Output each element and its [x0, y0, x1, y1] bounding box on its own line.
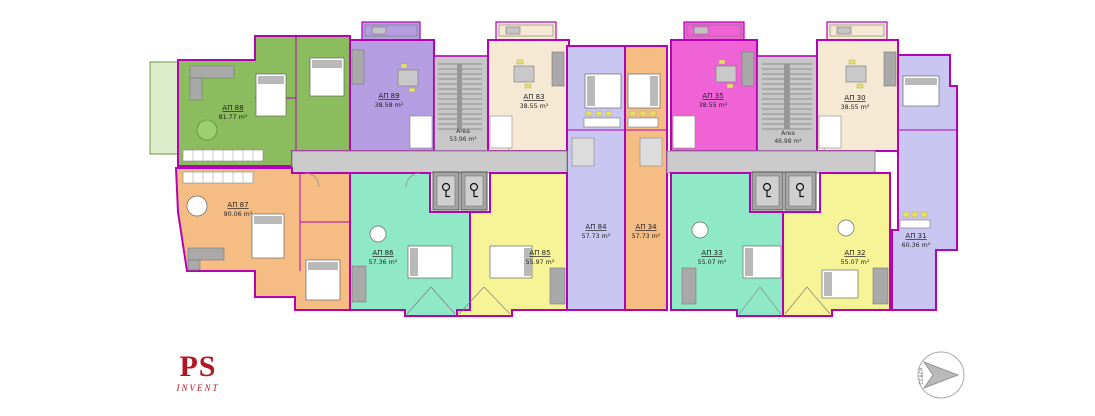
- chair: [596, 111, 602, 116]
- apartment-label: АП 83: [523, 93, 544, 101]
- chair: [401, 64, 407, 68]
- bed-pillow: [650, 76, 658, 106]
- apartment-label: АП 33: [701, 249, 722, 257]
- bed-pillow: [824, 272, 832, 296]
- bathroom: [572, 138, 594, 166]
- corridor-left: [292, 151, 567, 173]
- stair-divider-1: [457, 64, 462, 129]
- apartment-label: АП 89: [378, 92, 399, 100]
- bed-pillow: [254, 216, 282, 224]
- apartment-area: 55.07 m²: [841, 259, 870, 266]
- stair-core-label: Area: [781, 130, 795, 137]
- bathroom: [673, 116, 695, 148]
- apartment-area: 38.55 m²: [699, 102, 728, 109]
- stair-core-area: 53.96 m²: [449, 136, 477, 143]
- sofa: [352, 50, 364, 84]
- chair: [606, 111, 612, 116]
- chair: [409, 88, 415, 92]
- bed-pillow: [312, 60, 342, 68]
- stair-core-area: 46.98 m²: [774, 138, 802, 145]
- dining-table: [197, 120, 217, 140]
- chair: [727, 84, 733, 88]
- table: [716, 66, 736, 82]
- dining-table: [187, 196, 207, 216]
- apartment-label: АП 86: [372, 249, 394, 257]
- floor-plan-page: АП 88 81.77 m² АП 89 38.58 m² АП 83 38.5…: [0, 0, 1095, 416]
- dining-table: [692, 222, 708, 238]
- apartment-area: 81.77 m²: [219, 114, 248, 121]
- chair: [630, 111, 636, 116]
- chair: [903, 212, 909, 217]
- apartment-area: 55.07 m²: [698, 259, 727, 266]
- bed-pillow: [587, 76, 595, 106]
- table: [398, 70, 418, 86]
- bathroom: [410, 116, 432, 148]
- table: [900, 220, 930, 228]
- apartment-label: АП 84: [585, 223, 607, 231]
- apartment-label: АП 85: [529, 249, 550, 257]
- sofa: [550, 268, 565, 304]
- apartment-label: АП 35: [702, 92, 723, 100]
- table: [846, 66, 866, 82]
- bed-pillow: [745, 248, 753, 276]
- chair: [719, 60, 725, 64]
- dining-table: [370, 226, 386, 242]
- apartment-ap88-terrace: [150, 62, 178, 154]
- apartment-label: АП 30: [844, 94, 865, 102]
- logo-title: PS: [172, 352, 224, 382]
- table: [584, 118, 620, 127]
- corridor-right: [667, 151, 875, 173]
- bed-pillow: [308, 262, 338, 270]
- chair: [912, 212, 918, 217]
- sofa: [873, 268, 888, 304]
- stair-core-label: Area: [456, 128, 470, 135]
- bed-pillow: [410, 248, 418, 276]
- sofa: [352, 266, 366, 302]
- bed-pillow: [905, 78, 937, 85]
- chair: [586, 111, 592, 116]
- apartment-label: АП 87: [227, 201, 248, 209]
- logo-subtitle: INVENT: [172, 383, 224, 393]
- sofa: [552, 52, 564, 86]
- apartment-area: 55.97 m²: [526, 259, 555, 266]
- bathroom: [819, 116, 841, 148]
- bathroom: [640, 138, 662, 166]
- chair: [849, 60, 855, 64]
- chair: [517, 60, 523, 64]
- sofa: [884, 52, 896, 86]
- apartment-label: АП 31: [905, 232, 926, 240]
- bathroom: [490, 116, 512, 148]
- apartment-area: 38.55 m²: [520, 103, 549, 110]
- apartment-label: АП 32: [844, 249, 865, 257]
- apartment-area: 38.58 m²: [375, 102, 404, 109]
- apartment-area: 57.73 m²: [632, 233, 661, 240]
- chair: [921, 212, 927, 217]
- stair-divider-2: [784, 64, 790, 129]
- apartment-label: АП 88: [222, 104, 243, 112]
- apartment-area: 57.36 m²: [369, 259, 398, 266]
- apartment-area: 60.36 m²: [902, 242, 931, 249]
- floor-plan-drawing: АП 88 81.77 m² АП 89 38.58 m² АП 83 38.5…: [0, 0, 1095, 416]
- sofa: [188, 248, 224, 260]
- sofa: [682, 268, 696, 304]
- apartment-area: 90.06 m²: [224, 211, 253, 218]
- sofa: [188, 260, 200, 270]
- chair: [857, 84, 863, 88]
- sofa: [190, 78, 202, 100]
- north-compass: СЕВЕР: [918, 352, 964, 398]
- ps-invent-logo: PS INVENT: [172, 352, 224, 393]
- apartment-label: АП 34: [635, 223, 657, 231]
- compass-label: СЕВЕР: [919, 368, 925, 385]
- table: [628, 118, 658, 127]
- sofa: [190, 66, 234, 78]
- bed-pillow: [258, 76, 284, 84]
- chair: [650, 111, 656, 116]
- dining-table: [838, 220, 854, 236]
- apartment-area: 38.55 m²: [841, 104, 870, 111]
- table: [514, 66, 534, 82]
- kitchen-counter: [183, 172, 253, 183]
- sofa: [742, 52, 754, 86]
- chair: [640, 111, 646, 116]
- apartment-area: 57.73 m²: [582, 233, 611, 240]
- chair: [525, 84, 531, 88]
